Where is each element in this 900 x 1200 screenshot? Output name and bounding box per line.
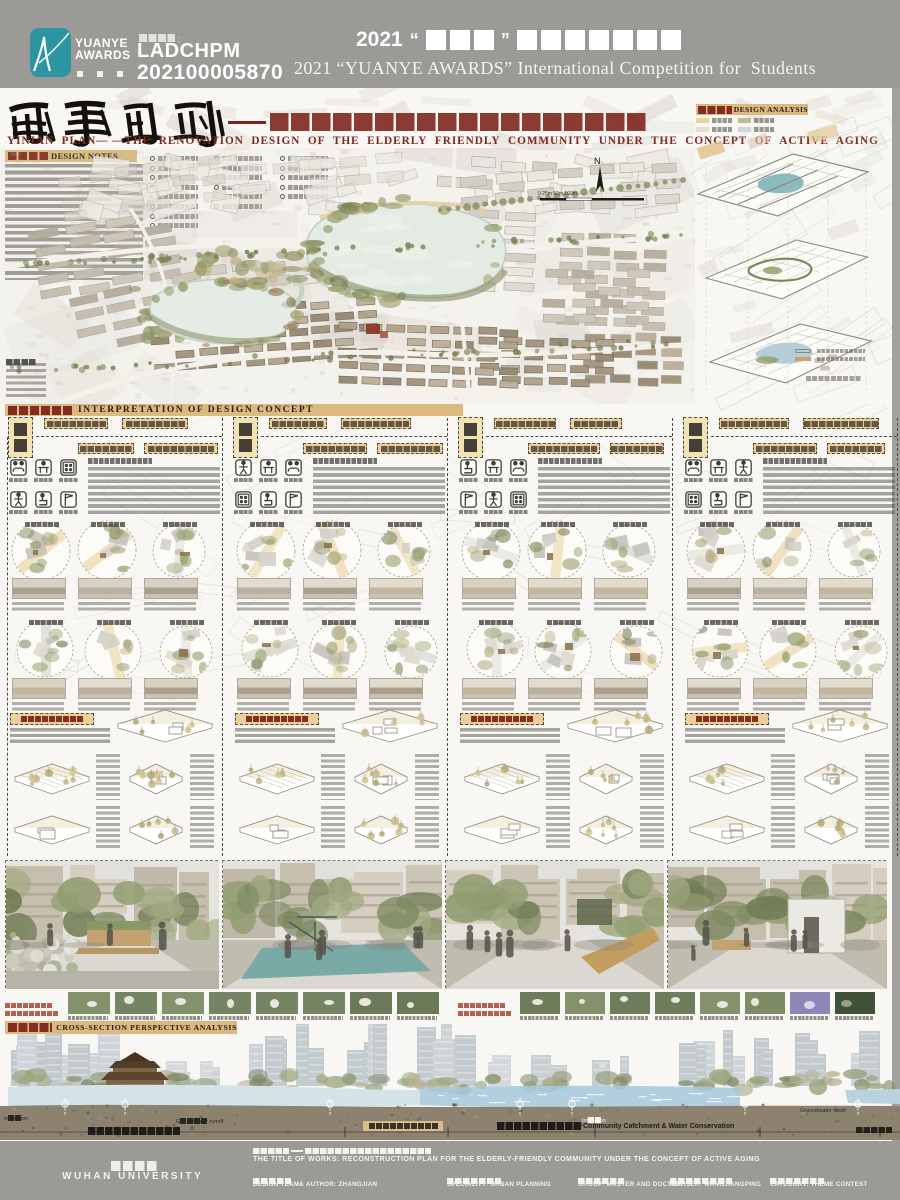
svg-text:0 25m 50m 100m: 0 25m 50m 100m [538, 191, 577, 197]
svg-text:N: N [594, 156, 601, 166]
